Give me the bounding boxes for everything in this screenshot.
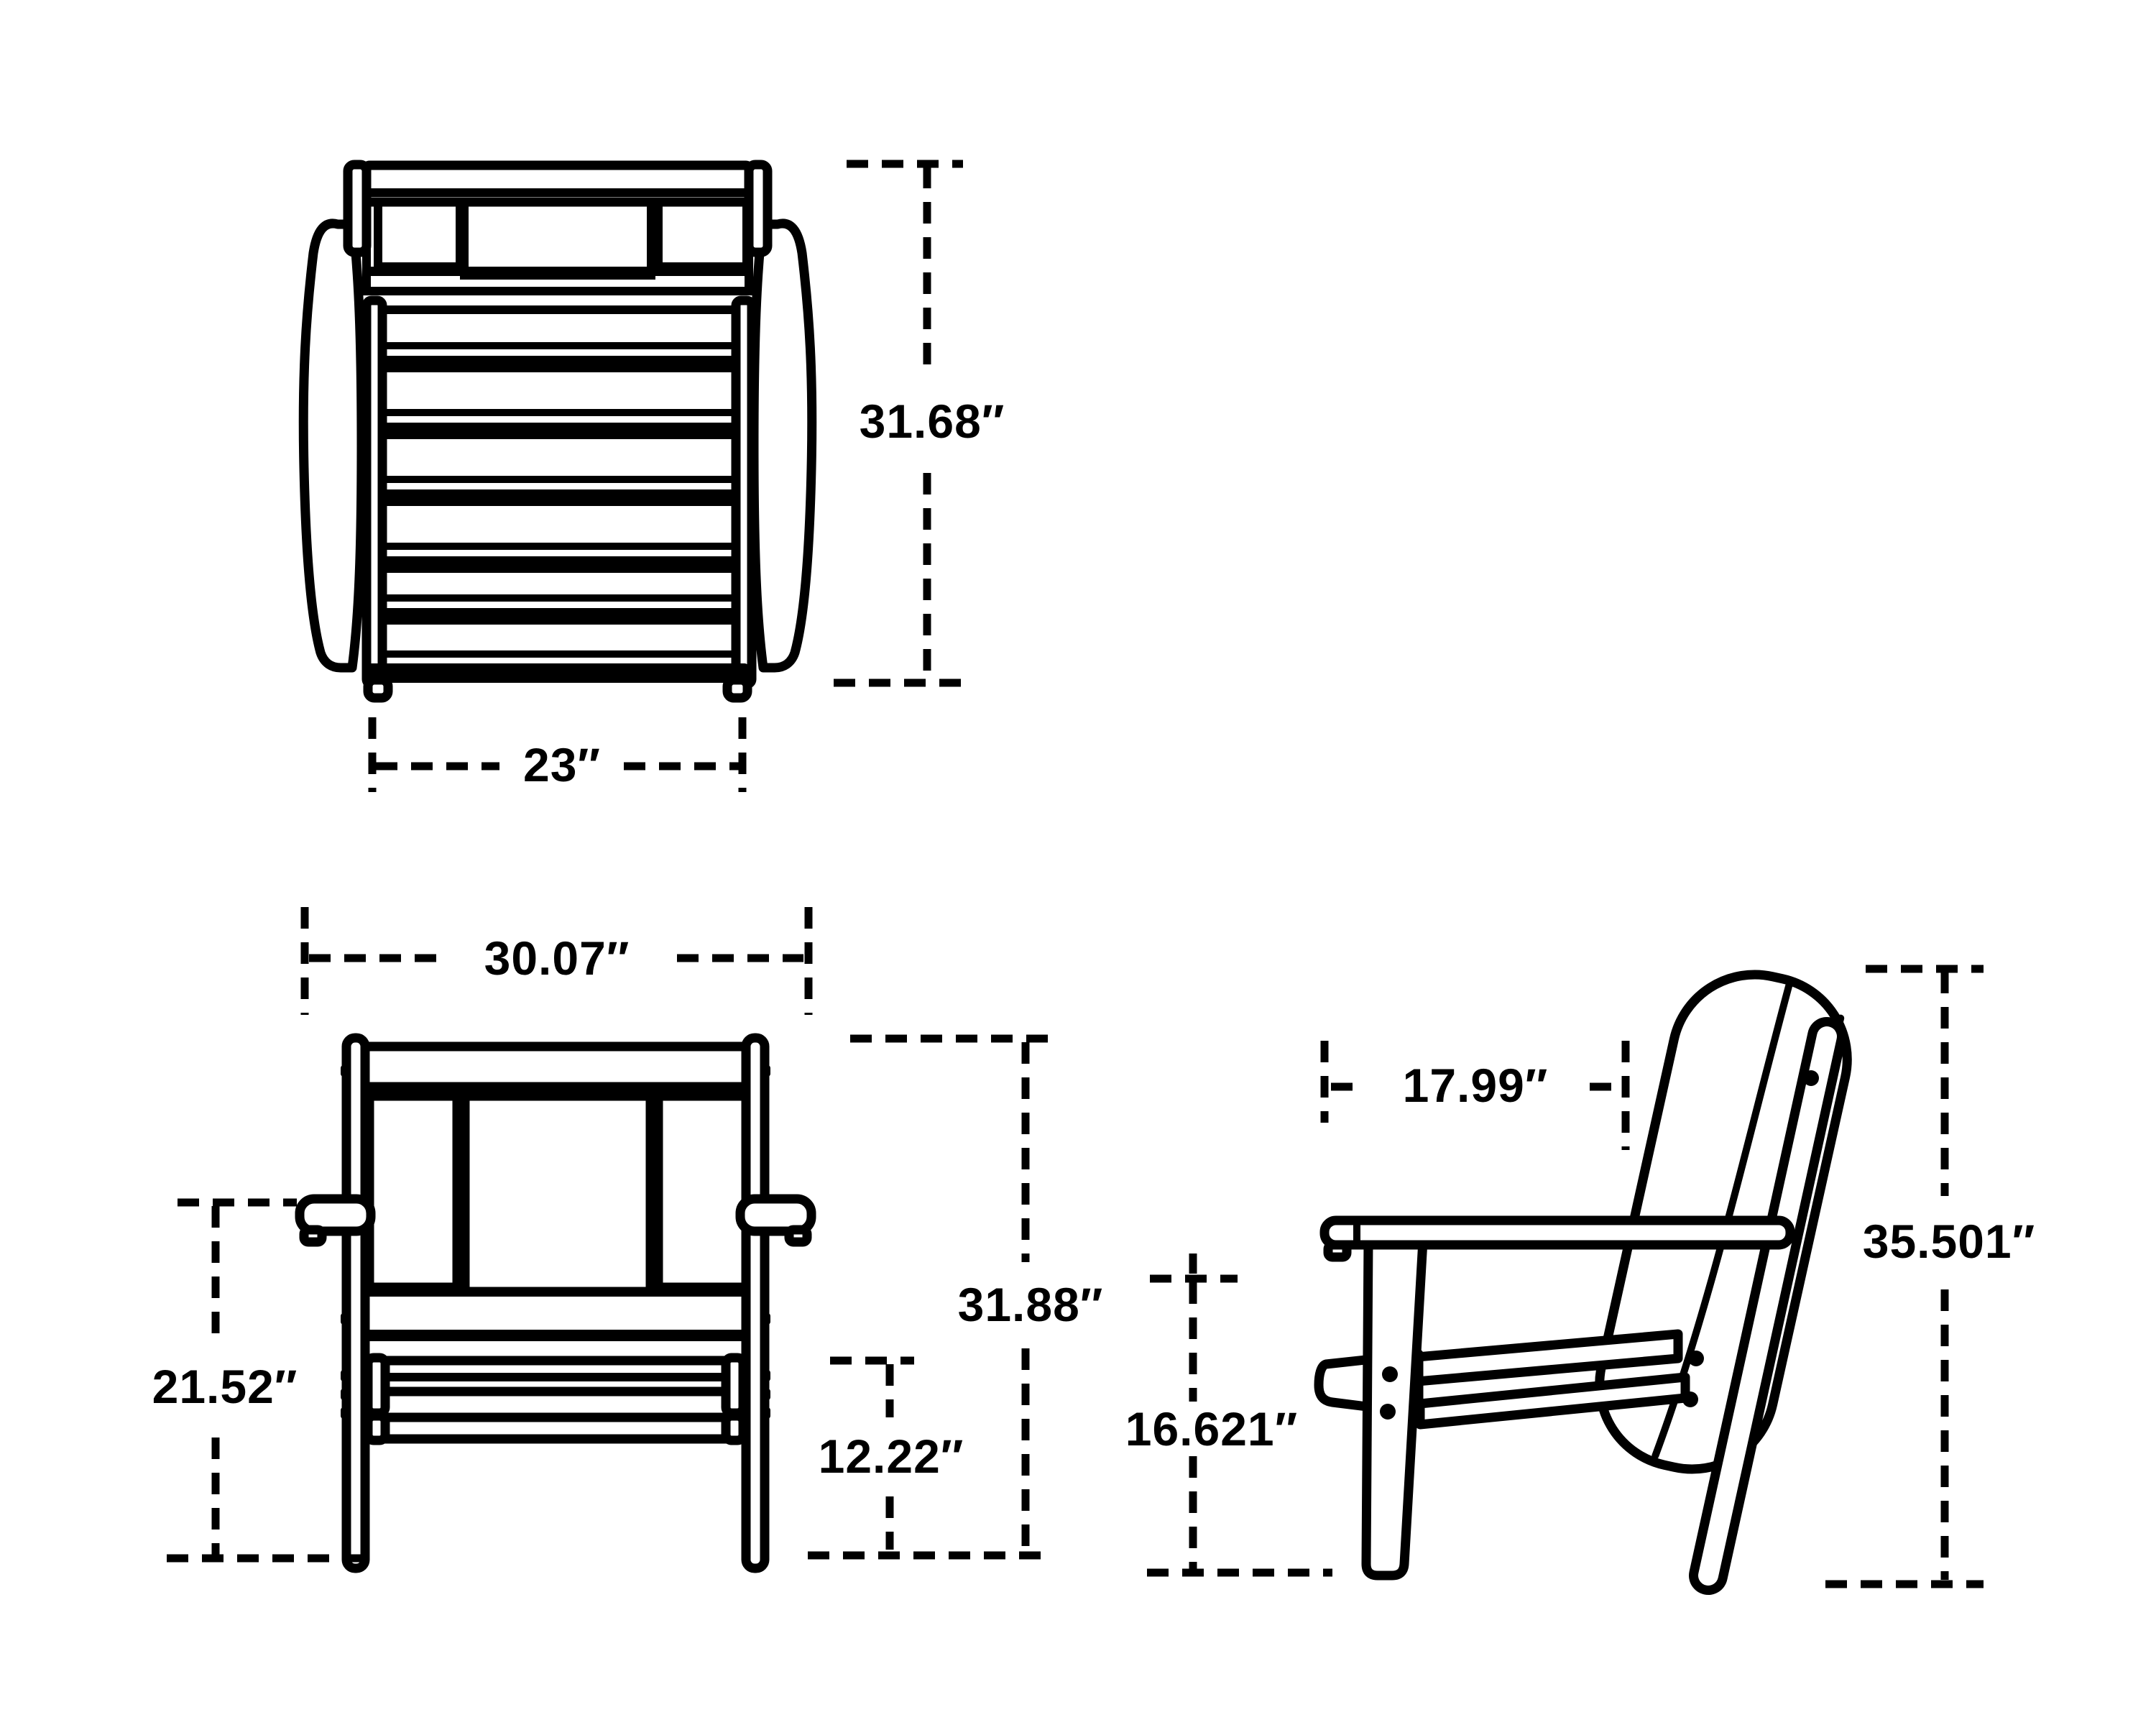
dim-label-front-seat-height: 12.22″ [819,1430,964,1483]
seat-slat [382,489,736,506]
back-panel-middle [464,202,651,275]
right-post-leg [746,1038,765,1568]
screw [1688,1351,1704,1366]
left-rail [367,300,382,684]
screw [1682,1391,1698,1407]
apron-cap [368,1416,385,1440]
back-bottom-band [359,1287,762,1297]
diagram-canvas: 31.68″ 23″ [0,0,2156,1725]
front-view: 30.07″ 21.52″ 31.88″ 12.22″ [152,907,1104,1568]
post-plug [341,1389,346,1400]
right-arm [754,224,812,668]
top-view: 31.68″ 23″ [303,164,1005,792]
dim-label-top-height: 31.68″ [860,395,1005,448]
right-arm-nub [789,1230,807,1242]
dim-front-arm-height: 21.52″ [152,1202,298,1557]
side-view: 17.99″ 35.501″ 16.621″ [1125,959,2035,1584]
dim-label-front-width: 30.07″ [484,931,630,985]
left-arm-nub [304,1230,322,1242]
back-panel-right [658,1096,747,1287]
back-top-bar [359,1046,762,1087]
armrest-nub [1328,1245,1347,1257]
dim-label-front-arm-height: 21.52″ [152,1360,298,1413]
dim-label-side-seat-depth: 17.99″ [1403,1059,1549,1112]
post-plug [341,1370,346,1381]
apron-cap [726,1358,743,1413]
post-plug [341,1065,346,1077]
armrest [1325,1220,1790,1245]
left-arm [303,224,361,668]
dim-top-width: 23″ [372,717,742,792]
front-view-drawing [300,1038,811,1568]
back-lower-band [367,272,749,291]
apron-cap [726,1416,743,1440]
post-plug [765,1407,770,1419]
apron-cap [368,1358,385,1413]
dim-front-width: 30.07″ [305,907,808,1015]
seat-front-band [359,1330,762,1341]
screw [1803,1070,1819,1086]
back-panel-row [367,202,749,271]
back-panel-right [658,202,747,267]
post-plug [765,1370,770,1381]
post-plug [341,1407,346,1419]
dim-label-top-width: 23″ [523,738,601,791]
screw [1382,1366,1398,1382]
post-plug [765,1065,770,1077]
chair-dimension-diagram: 31.68″ 23″ [0,0,2156,1725]
left-foot [368,680,388,698]
back-panel-middle [465,1096,650,1292]
post-plug [341,1313,346,1325]
seat-slat [382,608,736,625]
post-plug [765,1313,770,1325]
dim-label-side-overall-height: 35.501″ [1863,1215,2035,1268]
dim-front-seat-height: 12.22″ [819,1361,964,1550]
top-view-drawing [303,165,812,698]
seat-slat [382,356,736,372]
dim-label-front-overall-height: 31.88″ [958,1278,1104,1331]
dim-top-height: 31.68″ [834,164,1005,683]
post-plug [765,1389,770,1400]
side-view-drawing [1319,959,1863,1575]
left-post-leg [346,1038,365,1568]
dim-side-overall-height: 35.501″ [1825,969,2035,1584]
apron-rail-lower [384,1417,727,1439]
seat-bottom-bar [367,663,749,683]
dim-side-seat-front-height: 16.621″ [1125,1253,1332,1573]
right-foot [727,680,747,698]
back-panel-left [378,202,460,267]
back-panel-left [369,1096,457,1287]
right-rail [736,300,752,684]
seat-slat [382,556,736,573]
dim-side-seat-depth: 17.99″ [1325,1041,1626,1150]
screw [1380,1404,1396,1420]
seat-slat [382,423,736,439]
dim-label-side-seat-front-height: 16.621″ [1125,1402,1298,1455]
